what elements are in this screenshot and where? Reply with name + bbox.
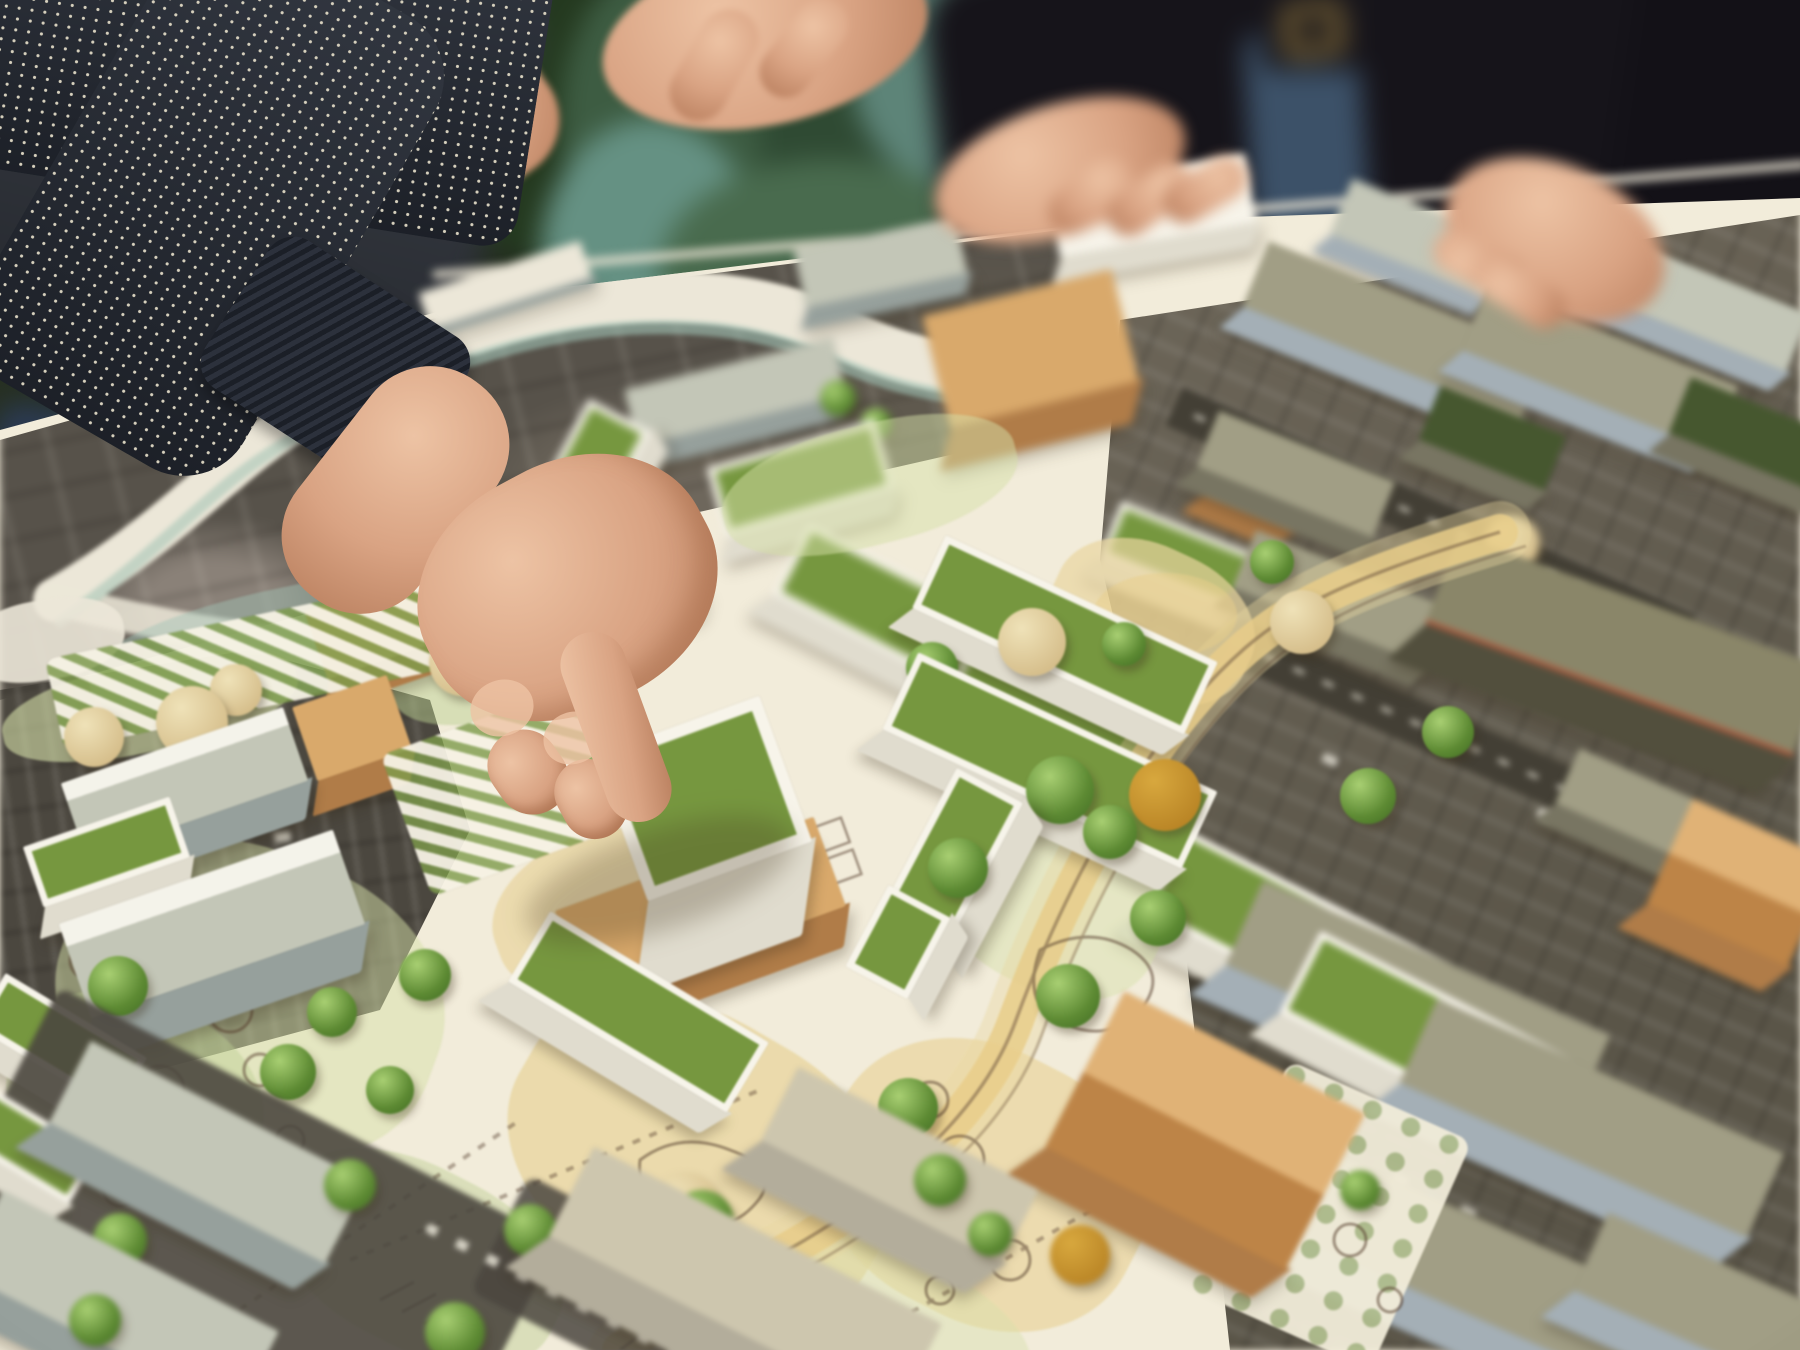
- vignette: [0, 0, 1800, 1350]
- photo-stage: Photograph: two people stand over a larg…: [0, 0, 1800, 1350]
